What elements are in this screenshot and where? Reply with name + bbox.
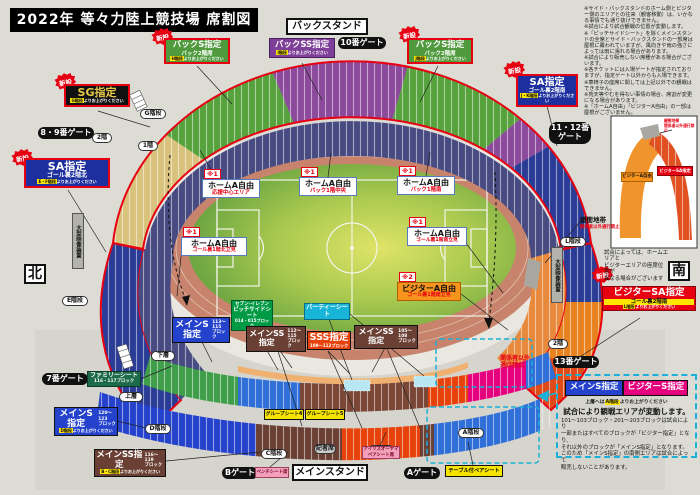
section-label-group-seat-5: グループシート5 <box>305 409 345 420</box>
fine-print-notes: ※サイド・バックスタンドのホーム側とビジター側のエリアとの往来（観客移動）は、い… <box>584 6 696 116</box>
section-label-party-seat: パーティーシート <box>304 303 350 320</box>
tier-pill-lower: 下層 <box>151 351 175 361</box>
compass-south: 南 <box>668 261 690 281</box>
section-title: ホームA自由 <box>300 179 356 188</box>
section-title: バックS指定 <box>410 41 470 51</box>
field-label-home-a-goal-north: ホームA自由 ゴール裏1階北立見 <box>181 237 247 256</box>
field-label-home-a-core: ホームA自由 応援中心エリア <box>202 179 260 198</box>
section-label-pink-pair-seat: アイリスオーヤマ ペアシート席 <box>362 446 400 459</box>
inset-buffer-zone-label: 緩衝地帯 関係者以外通行禁止 <box>664 119 696 133</box>
section-subtitle: 応援中心エリア <box>203 190 259 196</box>
section-label-sa-left: SA指定 ゴール裏2階北 E・F階段よりお上がりください <box>24 158 110 188</box>
variable-area-box: メインS指定 ビジターS指定 上層へはA階段よりお上がりください 試合により観戦… <box>556 374 697 458</box>
gate-b: Bゲート <box>222 467 258 479</box>
section-note: H階段よりお上がりください <box>167 57 227 62</box>
section-note: I階段よりお上がりください <box>271 51 333 56</box>
section-subtitle: バック1階中央 <box>300 188 356 194</box>
tier-pill-2f-right: 2階 <box>548 339 568 349</box>
section-title: メインSS指定 <box>248 330 285 348</box>
tier-pill-1f-left: 1階 <box>138 141 158 151</box>
section-title: メインS指定 <box>174 320 210 340</box>
section-label-main-ss-right: メインSS指定 105〜108 ブロック <box>354 325 418 349</box>
section-label-main-ss-bottom: メインSS指定 116〜119 ブロック B・C階段よりお上がりください <box>94 449 166 477</box>
note-marker-1: ※1 <box>301 167 318 177</box>
section-label-bench-seat: ベンチシート席 <box>255 467 289 478</box>
variable-visitor-s-label: ビジターS指定 <box>623 380 688 396</box>
section-title: メインSS指定 <box>356 328 396 346</box>
big-screen-label-north: 大型映像装置 <box>72 213 84 269</box>
back-stand-title: バックスタンド <box>286 18 368 35</box>
section-note: J階段よりお上がりください <box>410 57 470 62</box>
section-label-table-pair-seat: テーブル付ペアシート <box>445 465 503 477</box>
section-blocks: 113〜115 ブロック <box>212 320 228 340</box>
no-entry-note: 関係者以外 通行禁止 <box>500 356 542 370</box>
field-label-home-a-back-center: ホームA自由 バック1階中央 <box>299 177 357 196</box>
gate-10: 10番ゲート <box>338 37 386 49</box>
stairs-d-pill: D階段 <box>145 424 171 434</box>
section-label-main-ss-left: メインSS指定 112〜115 ブロック <box>246 326 306 352</box>
section-blocks: 105〜108 ブロック <box>398 329 416 344</box>
section-label-sss: SSS指定 109〜112ブロック <box>307 331 351 350</box>
section-label-main-s-lower-left: メインS指定 120〜123 ブロック D階段よりお上がりください <box>54 407 118 436</box>
section-label-visitor-sa: ビジターSA指定 ゴール裏2階南 L階段よりお上がりください <box>602 286 696 311</box>
section-blocks: 120〜123 ブロック <box>98 411 116 426</box>
buffer-zone-note: 緩衝地帯 関係者以外通行禁止 <box>580 214 628 230</box>
compass-north: 北 <box>24 264 46 284</box>
gate-a: Aゲート <box>404 467 440 479</box>
tier-pill-2f-left: 2階 <box>92 133 112 143</box>
note-marker-1: ※1 <box>204 169 221 179</box>
section-subtitle: バック1階南 <box>398 187 454 193</box>
section-note: L階段よりお上がりください <box>604 305 694 310</box>
stadium-seat-map: 2022年 等々力陸上競技場 席割図 ※サイド・バックスタンドのホーム側とビジタ… <box>0 0 700 495</box>
section-note: B・C階段よりお上がりください <box>96 470 164 475</box>
section-title: ホームA自由 <box>398 178 454 187</box>
section-title: バックS指定 <box>167 41 227 51</box>
section-subtitle: ゴール裏1階北立見 <box>182 248 246 254</box>
section-blocks: 109〜112ブロック <box>309 344 349 349</box>
gate-11-12: 11・12番 ゲート <box>549 122 591 144</box>
variable-main-s-label: メインS指定 <box>565 380 624 396</box>
page-title: 2022年 等々力陸上競技場 席割図 <box>10 8 258 32</box>
gate-8-9: 8・9番ゲート <box>38 127 94 139</box>
section-label-sa-right: SA指定 ゴール裏2階南 J・K階段よりお上がりください <box>516 74 578 107</box>
tier-pill-upper: 上層 <box>119 392 143 402</box>
field-label-home-a-back-south: ホームA自由 バック1階南 <box>397 176 455 195</box>
stairs-c-pill: C階段 <box>261 449 287 459</box>
section-blocks: 112〜115 ブロック <box>287 329 304 349</box>
note-marker-2: ※2 <box>399 272 416 282</box>
section-label-sg: SG指定 G階段よりお上がりください <box>64 84 130 107</box>
section-title: メインS指定 <box>56 409 96 429</box>
section-note: J・K階段よりお上がりください <box>519 94 575 103</box>
stairs-l-pill: L階段 <box>560 237 586 247</box>
gate-13: 13番ゲート <box>553 356 599 368</box>
field-label-home-a-goal-south: ホームA自由 ゴール裏1階南立見 <box>407 227 467 246</box>
gate-7: 7番ゲート <box>42 373 88 385</box>
section-label-back-s-right: バックS指定 バック2階席 J階段よりお上がりください <box>407 38 473 64</box>
buffer-zone-subtitle: 関係者以外通行禁止 <box>580 224 628 230</box>
section-label-back-ss: バックSS指定 I階段よりお上がりください <box>269 38 335 58</box>
press-seats-label: 記者席 <box>314 444 336 454</box>
section-subtitle: ゴール裏1階南立見 <box>408 238 466 244</box>
variable-headline: 試合により観戦エリアが変動します。 <box>558 406 695 417</box>
variable-stairs-note: 上層へはA階段よりお上がりください <box>558 398 695 405</box>
section-label-group-seat-4: グループシート4 <box>264 409 304 420</box>
section-blocks: 116・117ブロック <box>89 380 139 385</box>
section-label-family-seat: ファミリーシート 116・117ブロック <box>87 371 141 387</box>
buffer-zone-title: 緩衝地帯 <box>580 214 628 224</box>
section-label-main-s-center: メインS指定 113〜115 ブロック <box>172 317 230 343</box>
section-note: E・F階段よりお上がりください <box>27 180 107 185</box>
section-blocks: 116〜119 ブロック <box>145 453 164 468</box>
note-marker-1: ※1 <box>409 217 426 227</box>
big-screen-label-south: 大型映像装置 <box>551 247 563 303</box>
section-title: ビジターSA指定 <box>604 288 694 299</box>
variable-body-text: 101〜103ブロック・201〜203ブロックは試合により 一部またはすべてのブ… <box>561 418 692 472</box>
inset-visitor-sa-label: ビジターSA指定 <box>657 166 693 176</box>
section-title: メインSS指定 <box>96 451 143 470</box>
section-title: ホームA自由 <box>408 229 466 238</box>
section-subtitle: ゴール裏1階南立見 <box>398 293 460 299</box>
section-title: ホームA自由 <box>203 181 259 190</box>
note-marker-1: ※1 <box>399 166 416 176</box>
inset-visitor-a-label: ビジターA自由 <box>621 172 653 182</box>
section-title: SA指定 <box>519 77 575 88</box>
stairs-a-pill: A階段 <box>458 428 484 438</box>
section-note: D階段よりお上がりください <box>56 429 116 434</box>
note-marker-1: ※1 <box>183 227 200 237</box>
stairs-e-pill: E階段 <box>62 296 88 306</box>
section-note: G階段よりお上がりください <box>67 99 127 104</box>
section-label-back-s-left: バックS指定 バック2階席 H階段よりお上がりください <box>164 38 230 64</box>
stairs-g-pill: G階段 <box>140 109 166 119</box>
inset-caption: 試合によっては、ホームエリアと ビジターエリアの座席位置が 異なる場合がございま… <box>604 250 668 282</box>
field-label-visitor-a: ビジターA自由 ゴール裏1階南立見 <box>397 282 461 301</box>
main-stand-title: メインスタンド <box>292 464 368 481</box>
